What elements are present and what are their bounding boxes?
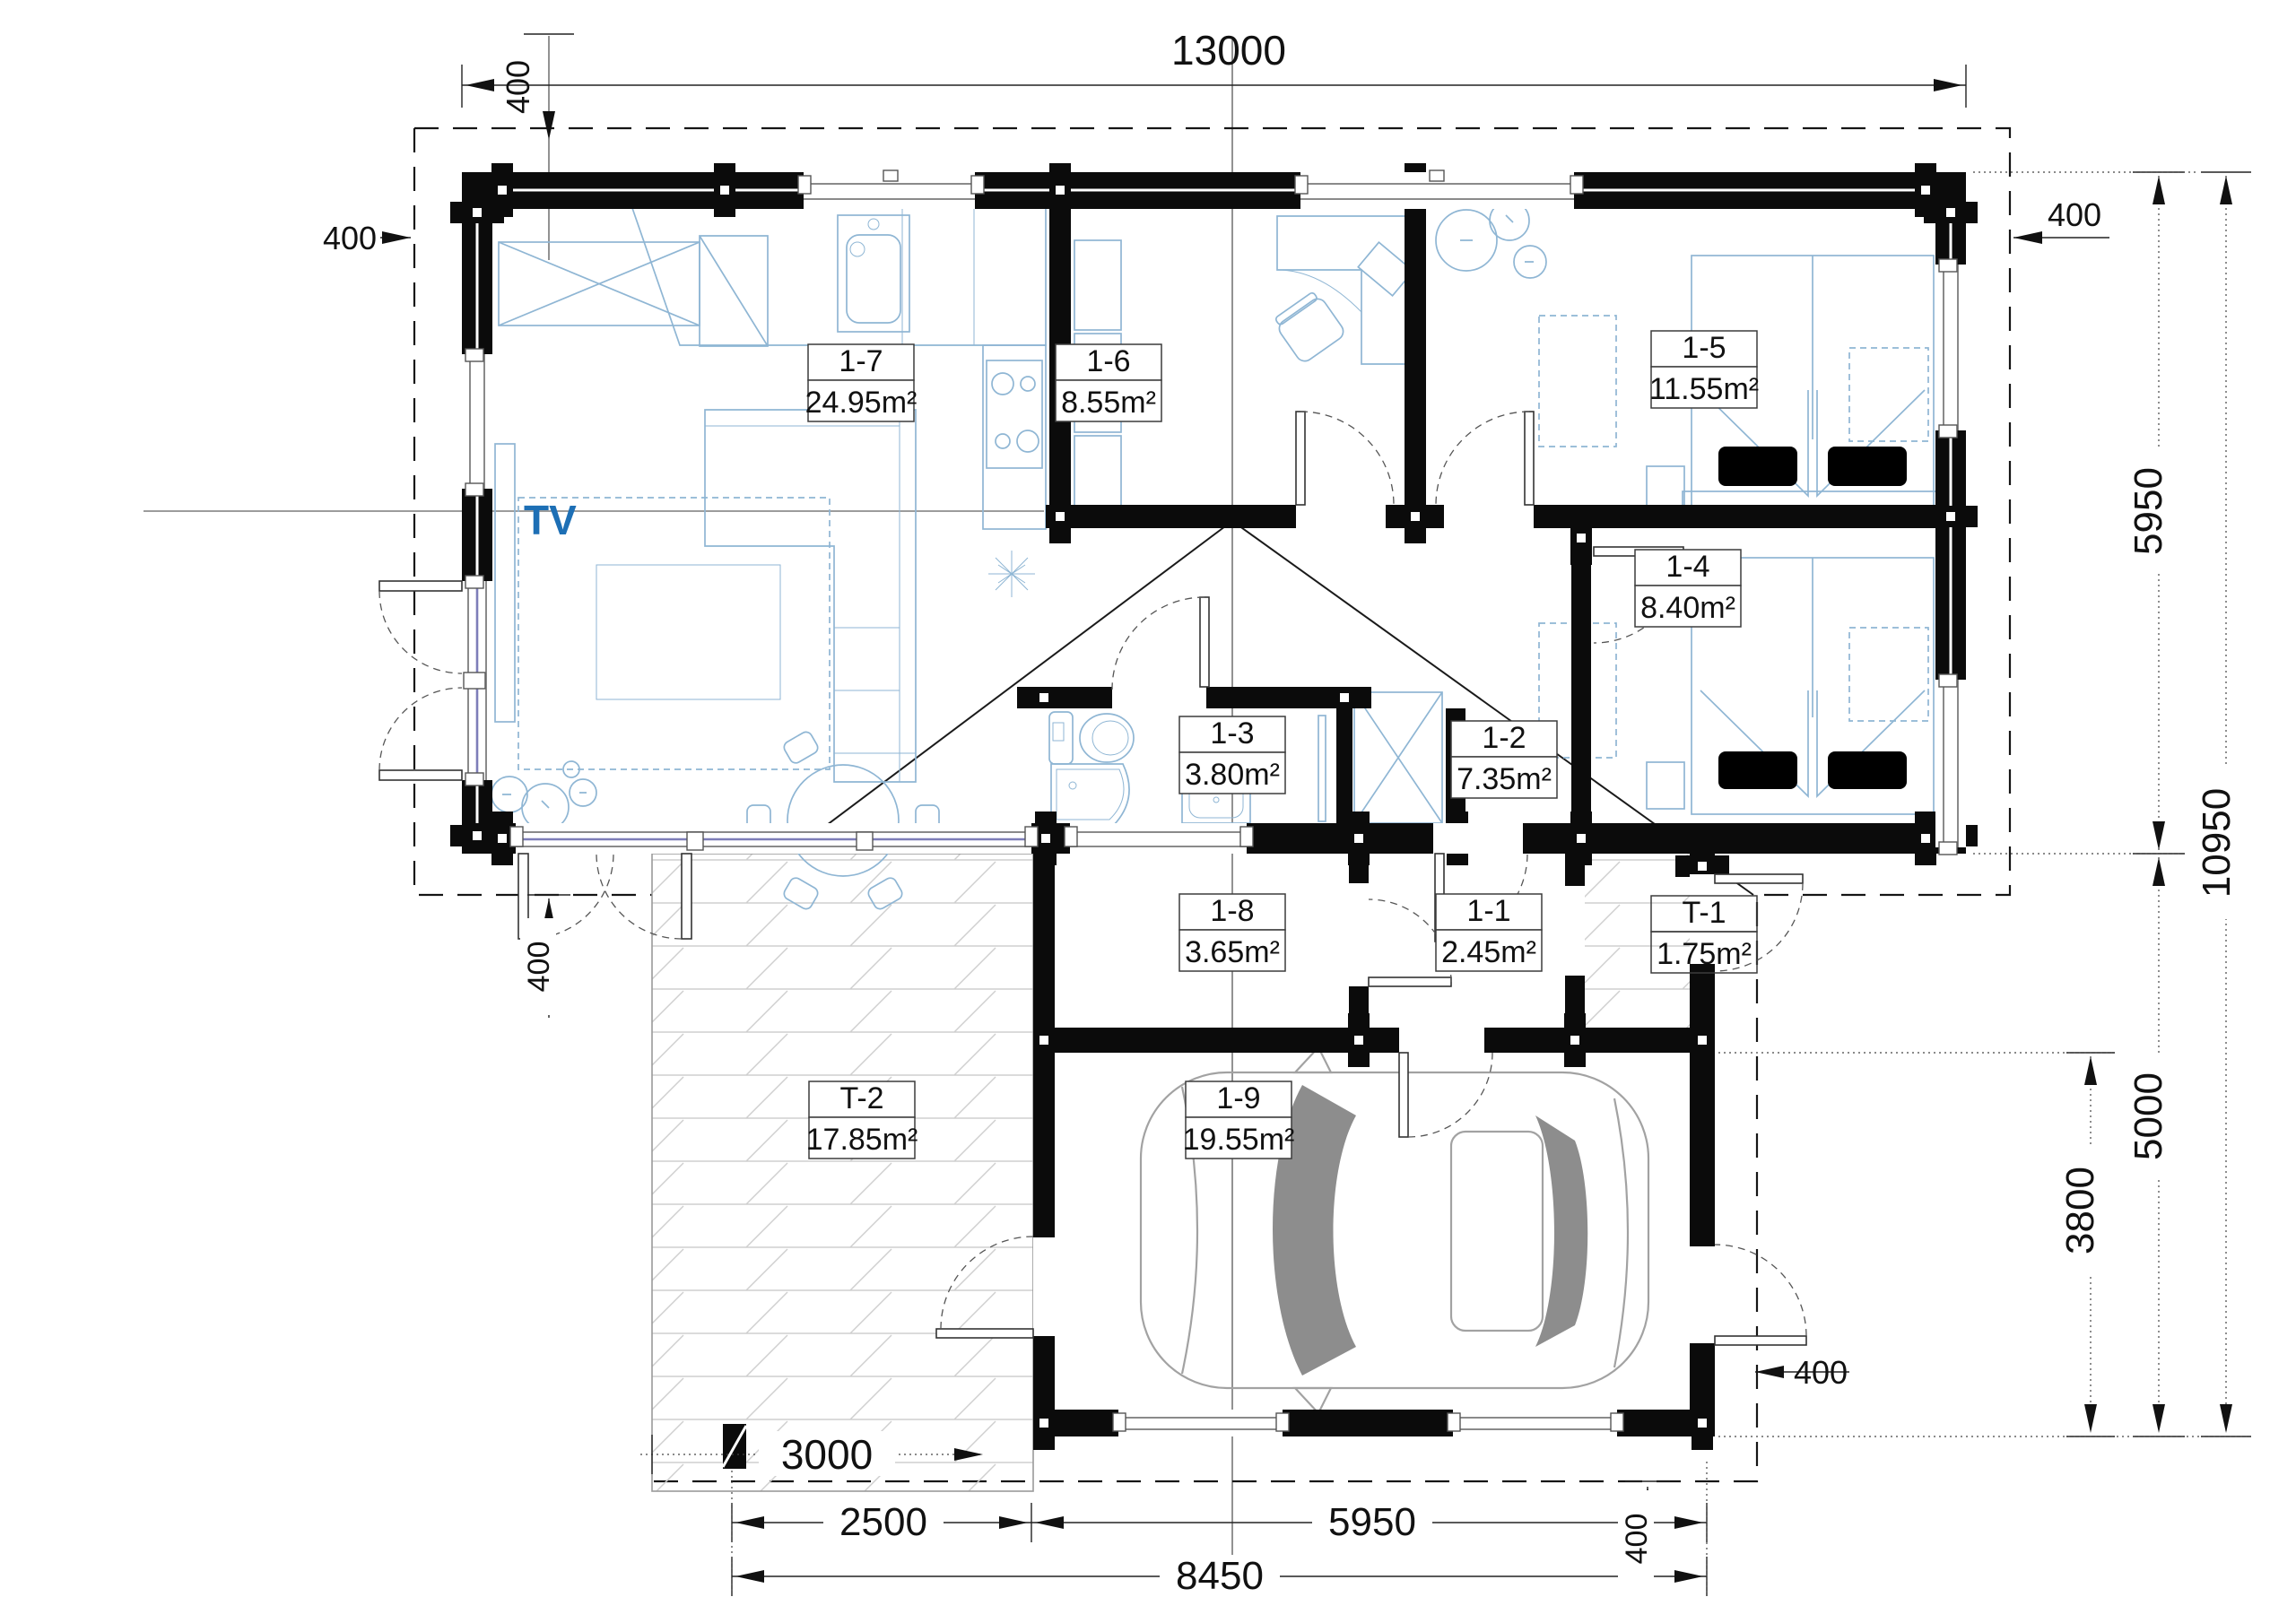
dim-bottom-left: 2500 5950 xyxy=(732,1500,1707,1544)
door-bathroom xyxy=(1112,597,1209,708)
window-1-5 xyxy=(1935,259,1966,438)
svg-text:T-1: T-1 xyxy=(1682,896,1726,930)
svg-text:400: 400 xyxy=(2048,196,2101,233)
wardrobe-living xyxy=(499,236,768,346)
door-garage-inner xyxy=(1399,1028,1492,1137)
svg-text:400: 400 xyxy=(500,60,536,114)
terrace-post xyxy=(723,1424,746,1469)
svg-text:5950: 5950 xyxy=(1328,1500,1416,1544)
svg-text:1-2: 1-2 xyxy=(1482,721,1526,755)
plant-1-5 xyxy=(1436,201,1546,278)
svg-text:400: 400 xyxy=(1794,1354,1848,1391)
room-label-T-2: T-2 17.85m² xyxy=(806,1081,918,1159)
dim-top-width: 13000 xyxy=(462,27,1966,108)
towel-rail xyxy=(1318,716,1326,821)
svg-text:1-3: 1-3 xyxy=(1210,716,1254,751)
dim-eave-right: 400 xyxy=(2013,196,2109,244)
svg-text:1-9: 1-9 xyxy=(1216,1081,1260,1115)
dim-eave-garage: 400 xyxy=(1755,1354,1849,1391)
garage-window-right xyxy=(1448,1410,1623,1436)
svg-text:19.55m²: 19.55m² xyxy=(1183,1123,1295,1157)
dim-eave-left: 400 xyxy=(323,220,411,256)
rug-1-4b xyxy=(1849,628,1928,721)
svg-text:5000: 5000 xyxy=(2126,1072,2170,1160)
room-label-1-4: 1-4 8.40m² xyxy=(1635,550,1741,627)
tv-label: TV xyxy=(524,497,577,543)
window-living-left xyxy=(462,349,492,496)
svg-text:5950: 5950 xyxy=(2126,467,2170,555)
window-study xyxy=(1295,170,1583,209)
svg-text:2500: 2500 xyxy=(839,1500,927,1544)
dim-right-upper: 5950 xyxy=(2126,172,2185,854)
room-label-1-7: 1-7 24.95m² xyxy=(805,344,918,421)
dim-right-total: 10950 xyxy=(2195,172,2251,1436)
toilet xyxy=(1049,712,1134,764)
tv-bench xyxy=(495,444,515,722)
window-kitchen xyxy=(798,170,984,209)
wardrobe-hall xyxy=(1354,692,1442,823)
svg-text:1-4: 1-4 xyxy=(1665,550,1709,584)
svg-text:400: 400 xyxy=(1620,1514,1654,1565)
svg-text:7.35m²: 7.35m² xyxy=(1457,762,1552,796)
floor-plan: TV 1-7 24.95m² 1-6 8.55m² 1-5 11.55m² 1-… xyxy=(0,0,2296,1623)
opening-1-1-T1 xyxy=(1565,886,1585,976)
svg-text:24.95m²: 24.95m² xyxy=(805,386,918,420)
room-label-1-5: 1-5 11.55m² xyxy=(1649,331,1759,408)
rug-1-5b xyxy=(1849,348,1928,441)
svg-text:3.80m²: 3.80m² xyxy=(1185,758,1280,792)
svg-text:11.55m²: 11.55m² xyxy=(1649,372,1759,406)
dim-eave-top: 400 xyxy=(500,34,574,140)
svg-text:17.85m²: 17.85m² xyxy=(806,1123,918,1157)
svg-text:3000: 3000 xyxy=(781,1431,873,1478)
dim-garage-depth: 3800 xyxy=(2058,1053,2115,1436)
svg-text:1-6: 1-6 xyxy=(1086,344,1130,378)
desk-1-6 xyxy=(1272,216,1415,365)
svg-text:8.55m²: 8.55m² xyxy=(1061,386,1156,420)
shower xyxy=(1051,764,1129,825)
room-label-1-9: 1-9 19.55m² xyxy=(1183,1081,1295,1159)
svg-text:1-7: 1-7 xyxy=(839,344,883,378)
garage-window-left xyxy=(1113,1410,1289,1436)
kitchen-cabinet xyxy=(983,345,1046,529)
door-1-5 xyxy=(1436,412,1534,528)
svg-text:T-2: T-2 xyxy=(839,1081,883,1115)
door-1-6 xyxy=(1296,412,1394,528)
svg-text:400: 400 xyxy=(522,942,556,993)
sink xyxy=(838,215,909,332)
rug-inner xyxy=(596,565,780,699)
light-symbol xyxy=(988,551,1035,597)
patio-door-left xyxy=(379,576,492,785)
room-label-1-1: 1-1 2.45m² xyxy=(1436,894,1542,971)
svg-text:8.40m²: 8.40m² xyxy=(1640,591,1735,625)
dim-right-lower: 5000 xyxy=(2126,857,2185,1436)
room-label-1-3: 1-3 3.80m² xyxy=(1179,716,1285,794)
room-label-1-6: 1-6 8.55m² xyxy=(1056,344,1161,421)
svg-text:3.65m²: 3.65m² xyxy=(1185,935,1280,969)
svg-text:10950: 10950 xyxy=(2195,788,2239,898)
svg-text:13000: 13000 xyxy=(1171,27,1286,74)
svg-text:8450: 8450 xyxy=(1176,1554,1264,1598)
window-hall xyxy=(1065,823,1253,854)
svg-text:1-1: 1-1 xyxy=(1466,894,1510,928)
window-1-4 xyxy=(1935,674,1966,855)
stove xyxy=(987,360,1042,468)
room-label-1-8: 1-8 3.65m² xyxy=(1179,894,1285,971)
svg-text:3800: 3800 xyxy=(2058,1167,2102,1254)
rug-1-5 xyxy=(1539,316,1616,447)
sofa xyxy=(705,410,916,782)
door-garage-right xyxy=(1690,1245,1806,1345)
svg-text:2.45m²: 2.45m² xyxy=(1441,935,1536,969)
dim-bottom-total: 8450 xyxy=(732,1554,1707,1598)
svg-text:1-8: 1-8 xyxy=(1210,894,1254,928)
dim-eave-terrace: 400 xyxy=(1618,1481,1670,1587)
room-label-1-2: 1-2 7.35m² xyxy=(1451,721,1557,798)
svg-text:400: 400 xyxy=(323,220,377,256)
svg-text:1.75m²: 1.75m² xyxy=(1657,937,1752,971)
svg-text:1-5: 1-5 xyxy=(1682,331,1726,365)
